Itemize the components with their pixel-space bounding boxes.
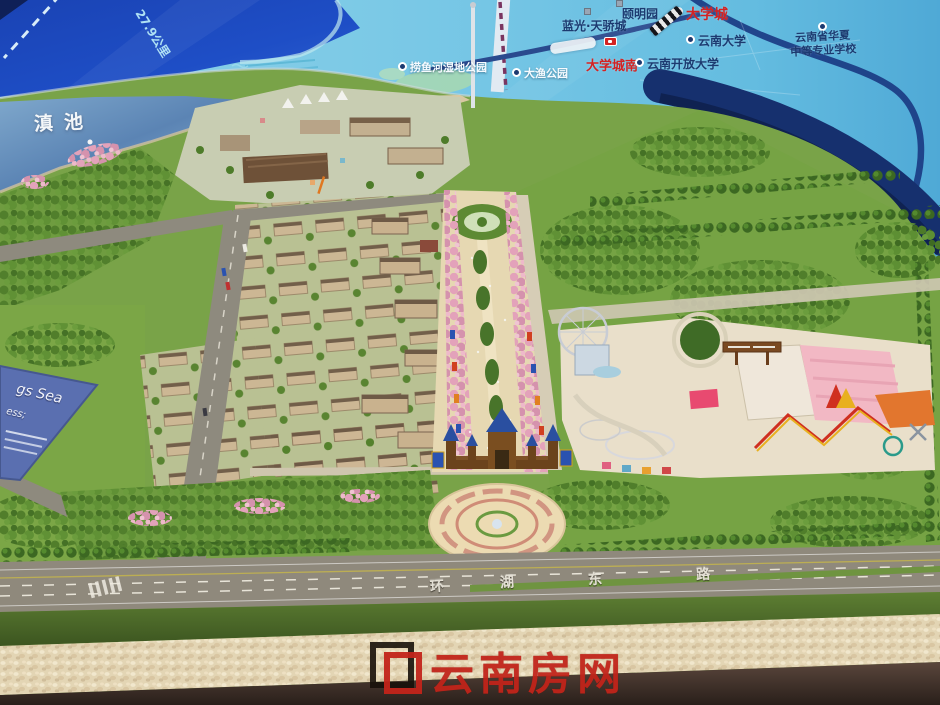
poi-dot: [635, 58, 644, 67]
gate-banner: [432, 452, 444, 468]
watermark-text: 云南房网: [430, 638, 626, 702]
map-label-huaxia-school: 云南省华夏 中等专业学校: [789, 28, 856, 59]
map-label-yunnan-university: 云南大学: [698, 32, 746, 49]
road-name-char: 东: [587, 569, 602, 590]
map-label-university-town-south: 大学城南: [586, 55, 638, 74]
poi-dot: [512, 68, 521, 77]
metro-logo-chip: [604, 37, 617, 46]
photo-of-scale-model: 27.9公里 捞鱼河湿地公园 大渔公园 蓝光·天骄城 颐明园 大学城 大学城南 …: [0, 0, 940, 705]
road-name-char: 环: [429, 576, 444, 597]
road-name-char: 湖: [499, 572, 514, 593]
map-label-university-town: 大学城: [686, 4, 728, 24]
watermark-logo: [368, 640, 424, 692]
map-label-yiming-garden: 颐明园: [622, 5, 658, 22]
poi-dot: [686, 35, 695, 44]
map-label-blueray-city: 蓝光·天骄城: [562, 17, 627, 34]
gate-banner: [560, 450, 572, 466]
road-name-char: 路: [695, 564, 710, 585]
watermark-logo-red-frame: [384, 652, 422, 694]
theme-park-cluster: [175, 85, 470, 205]
roundabout-tree: [680, 320, 720, 360]
model-boat: [88, 140, 93, 145]
scene-painting: [0, 0, 940, 705]
map-label-yunnan-open-university: 云南开放大学: [647, 55, 719, 72]
pool: [593, 366, 621, 378]
model-lake-label: 滇池: [33, 106, 94, 136]
poi-dot: [398, 62, 407, 71]
map-mini-icon: [584, 8, 591, 15]
map-label-wetland-park: 捞鱼河湿地公园: [410, 59, 487, 75]
map-label-dayu-park: 大渔公园: [524, 65, 568, 81]
